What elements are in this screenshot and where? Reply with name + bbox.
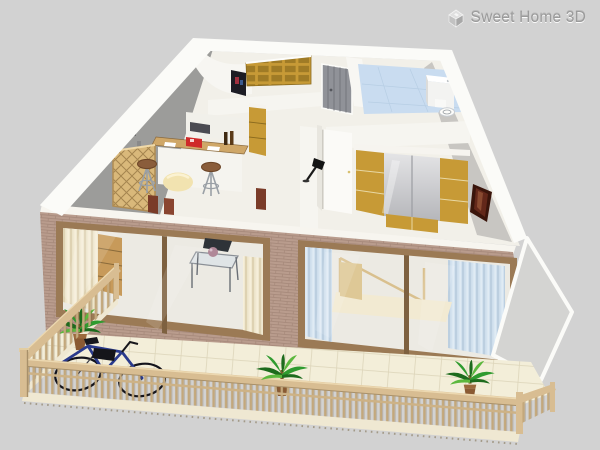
railing-post	[550, 382, 555, 412]
wardrobe-gold-door-left	[356, 150, 384, 216]
wardrobe-gold-door-right	[440, 158, 468, 224]
railing-post	[114, 263, 119, 299]
bottle	[230, 131, 234, 145]
dining-chair	[148, 195, 158, 214]
entrance-door	[322, 64, 352, 114]
door-knob	[348, 171, 351, 174]
sweet-home-3d-logo-icon	[446, 7, 466, 29]
3d-view-canvas[interactable]	[0, 0, 600, 450]
dining-chair	[256, 188, 266, 210]
window-divider	[404, 255, 409, 358]
dining-chair	[164, 198, 174, 215]
sweet-home-3d-render: Sweet Home 3D	[0, 0, 600, 450]
open-white-door	[322, 129, 352, 214]
cream-curtain	[243, 256, 263, 335]
app-logo: Sweet Home 3D	[446, 7, 586, 29]
tall-gold-cabinet	[249, 103, 266, 156]
logo-text: Sweet Home 3D	[471, 9, 586, 27]
bottle	[224, 132, 228, 145]
door-knob	[330, 89, 333, 92]
